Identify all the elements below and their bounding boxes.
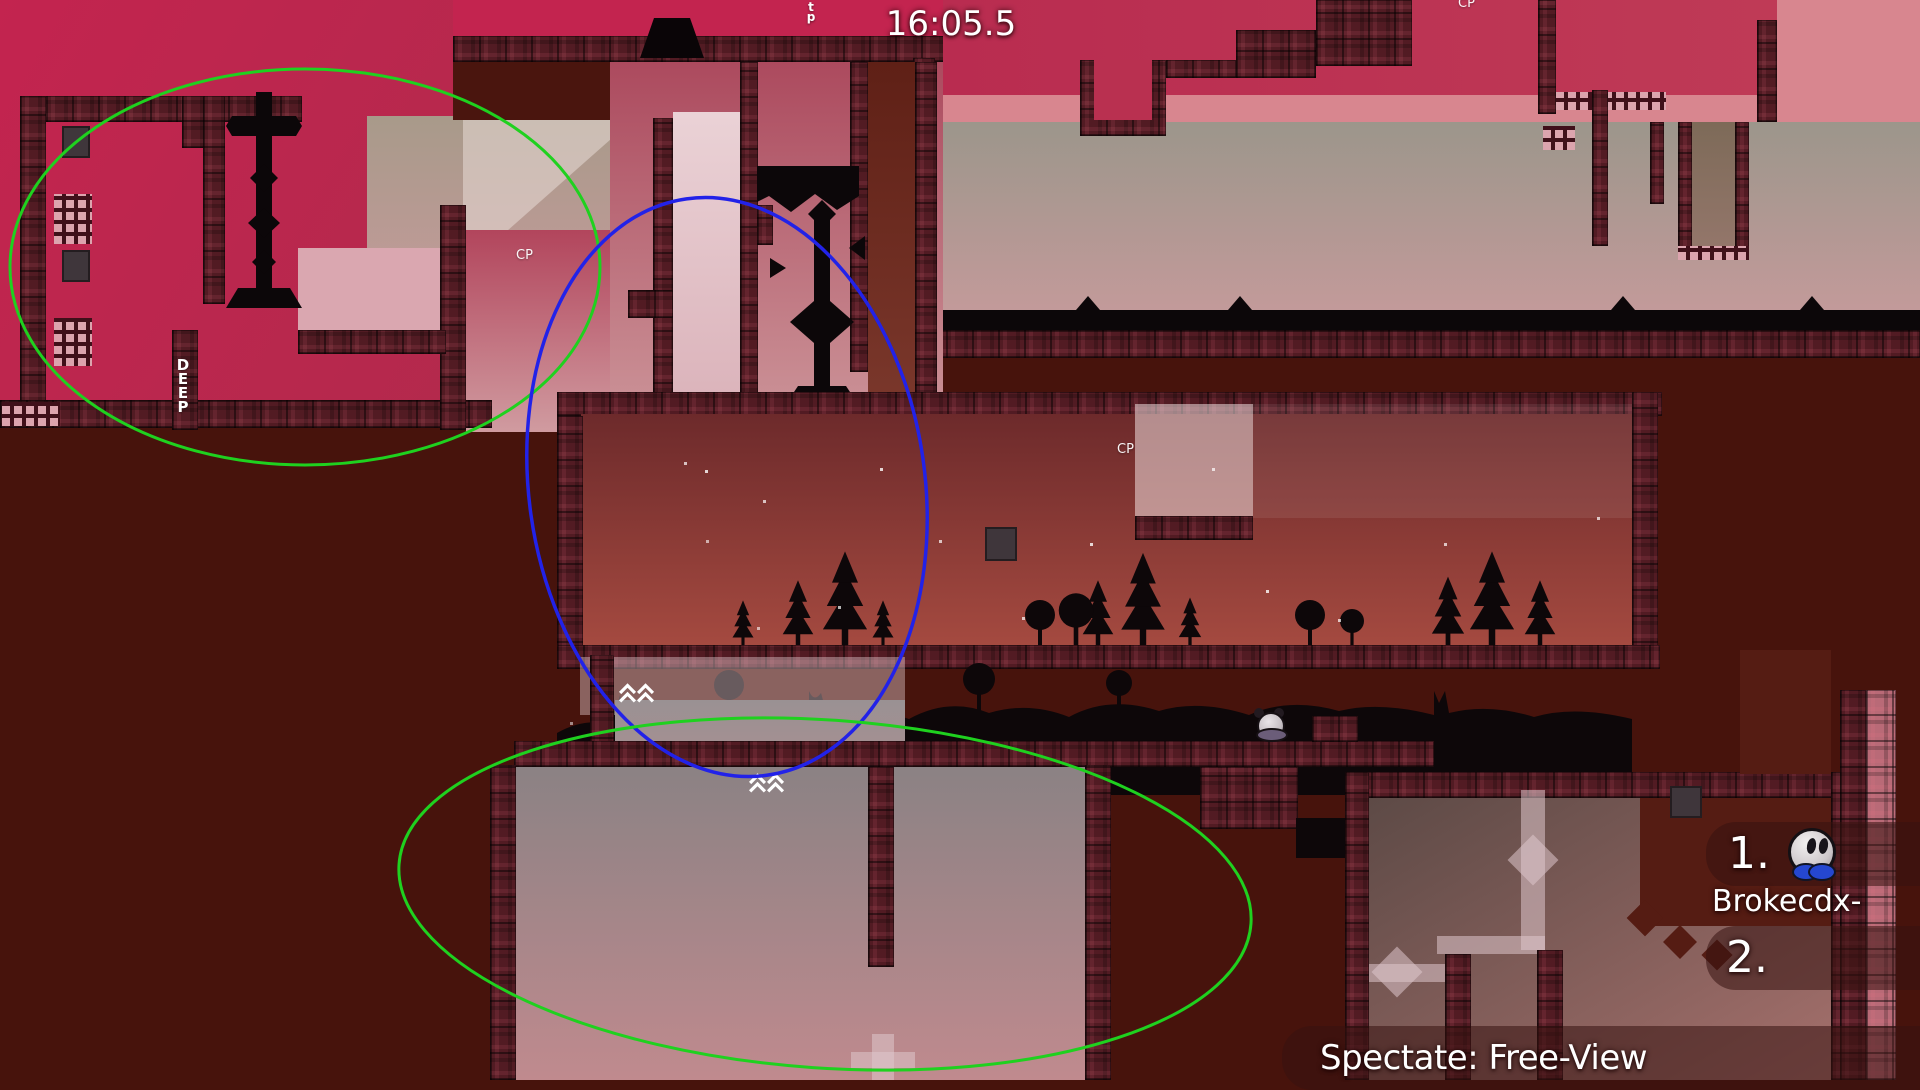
tile-wall (868, 767, 894, 967)
deep-zone-label: DEEP (174, 356, 192, 412)
checkpoint-platform (1135, 404, 1253, 518)
tile-wall (1678, 122, 1692, 258)
light-pillar (851, 1052, 915, 1068)
floor-spike (1611, 296, 1635, 310)
switch-block (62, 250, 90, 282)
dark-mass (1740, 650, 1831, 774)
tile-wall (440, 205, 466, 430)
tile-wall (1538, 0, 1556, 114)
tile-cluster (1678, 246, 1749, 260)
race-timer: 16:05.5 (886, 4, 1016, 44)
checkpoint-label: CP (516, 248, 533, 263)
scoreboard-rank-1: 1. (1728, 828, 1770, 879)
tile-wall (920, 330, 1920, 358)
tile-wall (0, 400, 492, 428)
player-skin-icon (1786, 826, 1834, 880)
stars (0, 0, 3, 3)
map-room-pink (298, 248, 444, 332)
floor-spike (1228, 296, 1252, 310)
map-room-dark (868, 62, 915, 402)
forest-silhouette (557, 536, 1660, 648)
game-screen: { "hud": { "timer": "16:05.5", "spectate… (0, 0, 1920, 1080)
light-path (1437, 936, 1545, 954)
tile-wall (1316, 0, 1412, 66)
tile-wall (1085, 765, 1111, 1080)
switch-block (62, 126, 90, 158)
tile-wall (1166, 60, 1236, 78)
speedup-arrows-icon (618, 682, 654, 706)
black-floor (925, 310, 1920, 330)
tile-cluster (54, 318, 92, 366)
checkpoint-label: CP (1458, 0, 1475, 11)
tee-foot-icon (1808, 863, 1836, 881)
tile-wall (20, 96, 46, 428)
scoreboard-rank-2: 2. (1726, 932, 1768, 983)
speedup-arrows-icon (748, 772, 784, 796)
floor-spike (1800, 296, 1824, 310)
tile-cluster (54, 194, 92, 244)
tile-cluster (2, 402, 60, 426)
tile-cluster (1543, 126, 1575, 150)
teleport-label: tp (804, 0, 818, 20)
player-tee (1254, 708, 1286, 742)
tile-wall (1757, 20, 1777, 122)
black-slope (640, 18, 704, 58)
map-room-grey-lower (516, 767, 1085, 1080)
spike-totem (226, 92, 302, 310)
tile-wall (1200, 767, 1298, 829)
spike-cross (770, 200, 865, 412)
game-viewport[interactable]: DEEP CP tp CP (0, 0, 1920, 1080)
map-room-grey (925, 122, 1920, 312)
hanging-block-core (1094, 60, 1152, 120)
tile-wall (1345, 772, 1833, 798)
tile-wall (628, 290, 673, 318)
floor-spike (1076, 296, 1100, 310)
scoreboard-player-name: Brokecdx- (1712, 884, 1862, 919)
black-notch (1296, 818, 1350, 858)
light-region (1253, 404, 1632, 518)
tile-wall (1236, 30, 1316, 78)
tile-wall (490, 765, 516, 1080)
switch-block (1670, 786, 1702, 818)
map-room-grey-upper (615, 700, 905, 744)
tile-wall (298, 330, 446, 354)
channel-fill (1692, 122, 1735, 246)
tile-wall (1312, 716, 1358, 742)
tile-cluster (1556, 92, 1666, 110)
tile-wall (514, 741, 1434, 767)
tee-feet-icon (1256, 728, 1288, 742)
spectate-mode-label: Spectate: Free-View (1320, 1038, 1647, 1078)
tile-wall (1650, 122, 1664, 204)
pink-band (1777, 0, 1920, 122)
tile-wall (1735, 122, 1749, 258)
tile-wall (915, 62, 937, 412)
tile-wall (203, 96, 225, 304)
tile-wall (1592, 90, 1608, 246)
checkpoint-label: CP (1117, 442, 1134, 457)
